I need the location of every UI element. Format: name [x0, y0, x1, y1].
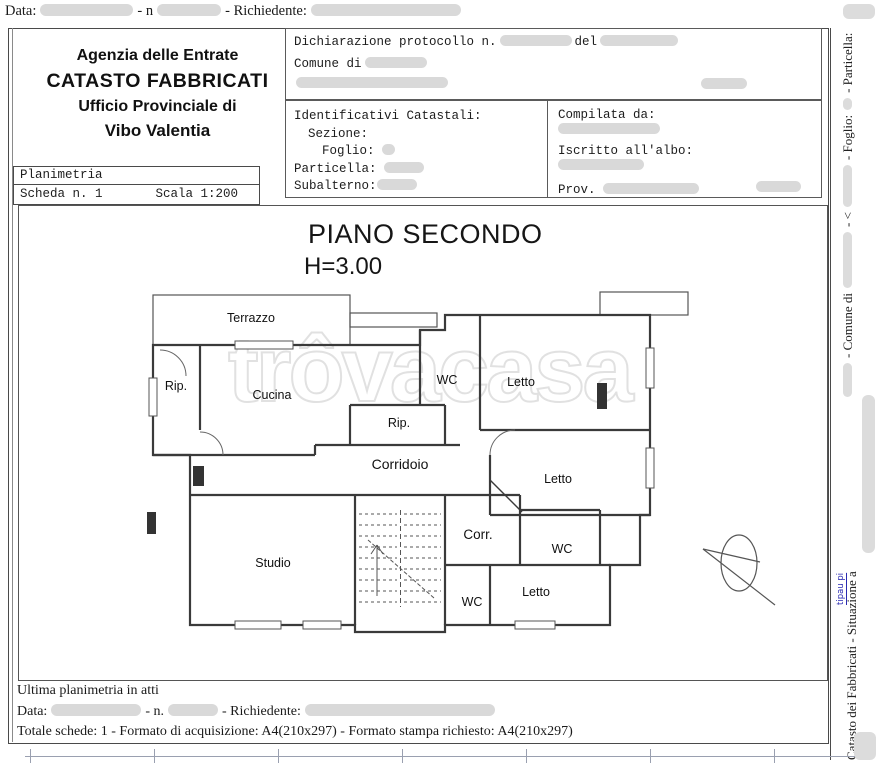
room-label-cucina: Cucina [253, 388, 292, 402]
totale-schede-line: Totale schede: 1 - Formato di acquisizio… [17, 724, 573, 740]
footer-data-label: Data: [17, 704, 47, 719]
ruler-tick [278, 749, 279, 763]
sidebar-blue-note: tipau pi [836, 545, 846, 605]
sidebar-upper-text: - Comune di- <- Foglio:- Particella: [840, 20, 860, 402]
floor-plan-drawing: Terrazzo Rip. Cucina WC Letto Rip. Corri… [0, 0, 879, 768]
ruler-tick [30, 749, 31, 763]
redaction [862, 395, 875, 553]
sidebar-comune-label: - Comune di [840, 293, 855, 358]
redaction [844, 232, 853, 288]
room-label-letto-3: Letto [522, 585, 550, 599]
redaction [843, 4, 875, 19]
window-marks [149, 341, 654, 629]
sidebar-lower-text: Catasto dei Fabbricati - Situazione a [844, 445, 862, 760]
ruler-tick [650, 749, 651, 763]
redaction [305, 704, 495, 716]
redaction [168, 704, 218, 716]
room-label-letto-2: Letto [544, 472, 572, 486]
sidebar-angle-label: - < [840, 212, 855, 227]
footer-n-label: - n. [145, 704, 164, 719]
ultima-planimetria-note: Ultima planimetria in atti [17, 683, 159, 699]
cadastral-document-page: Data:- n- Richiedente: Agenzia delle Ent… [0, 0, 879, 768]
room-label-wc-3: WC [462, 595, 483, 609]
redaction [844, 363, 853, 397]
staircase [359, 510, 441, 607]
room-label-rip-2: Rip. [388, 416, 410, 430]
sidebar-foglio-label: - Foglio: [840, 115, 855, 160]
room-label-wc-1: WC [437, 373, 458, 387]
room-label-corr: Corr. [463, 527, 492, 542]
room-label-letto-1: Letto [507, 375, 535, 389]
footer-data-line: Data:- n.- Richiedente: [17, 704, 499, 720]
sidebar-particella-label: - Particella: [840, 33, 855, 93]
ruler-tick [774, 749, 775, 763]
room-label-corridoio: Corridoio [372, 456, 429, 472]
room-label-rip-1: Rip. [165, 379, 187, 393]
room-label-terrazzo: Terrazzo [227, 311, 275, 325]
ruler-tick [154, 749, 155, 763]
apartment-walls [153, 315, 650, 632]
room-label-wc-2: WC [552, 542, 573, 556]
room-label-studio: Studio [255, 556, 290, 570]
stair-direction-arrow [371, 545, 383, 596]
ruler-tick [402, 749, 403, 763]
redaction [844, 165, 853, 207]
redaction [51, 704, 141, 716]
bottom-ruler-line [25, 756, 855, 757]
footer-richiedente-label: - Richiedente: [222, 704, 301, 719]
north-compass-icon [703, 535, 775, 605]
door-swings [160, 350, 515, 455]
redaction [844, 98, 853, 110]
redaction [854, 732, 876, 760]
ruler-tick [526, 749, 527, 763]
